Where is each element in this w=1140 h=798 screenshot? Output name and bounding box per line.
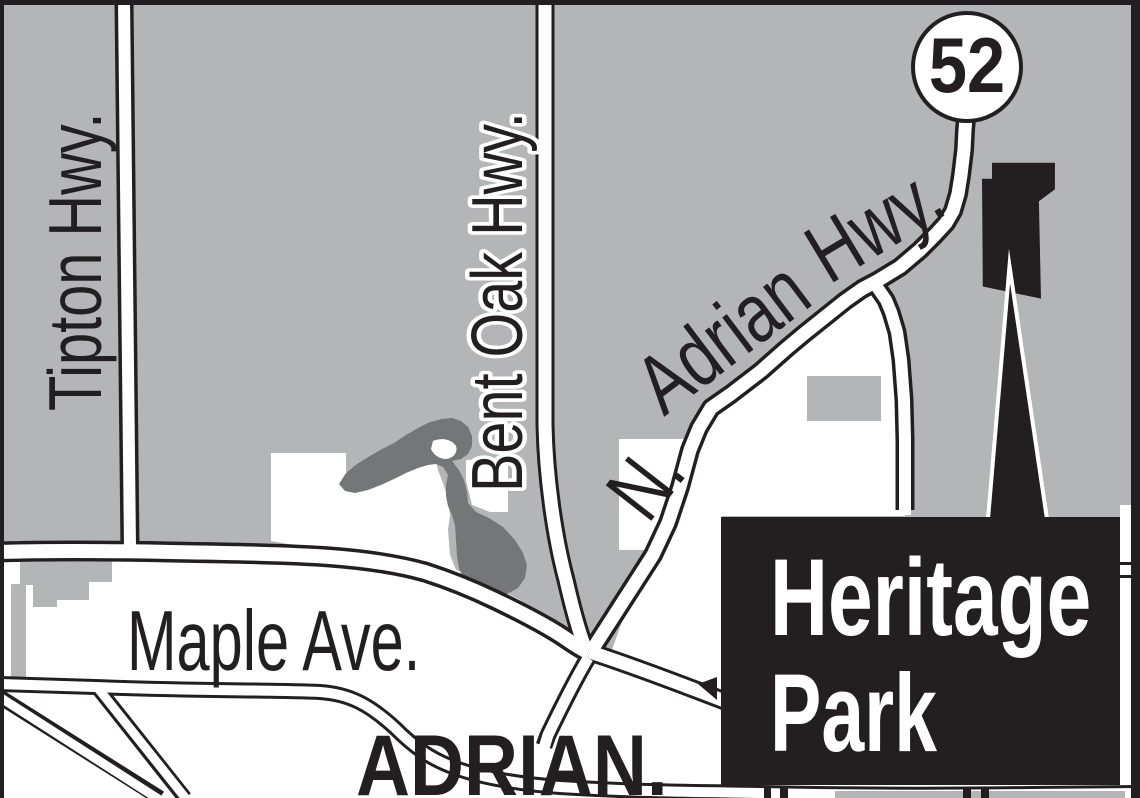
svg-text:Maple Ave.: Maple Ave. (127, 594, 420, 689)
svg-text:Park: Park (770, 653, 937, 776)
svg-text:ADRIAN.: ADRIAN. (356, 718, 668, 798)
svg-text:Heritage: Heritage (770, 537, 1091, 659)
svg-text:Bent Oak Hwy.: Bent Oak Hwy. (457, 112, 538, 492)
svg-text:Tipton Hwy.: Tipton Hwy. (34, 113, 118, 411)
svg-text:52: 52 (929, 21, 1005, 109)
